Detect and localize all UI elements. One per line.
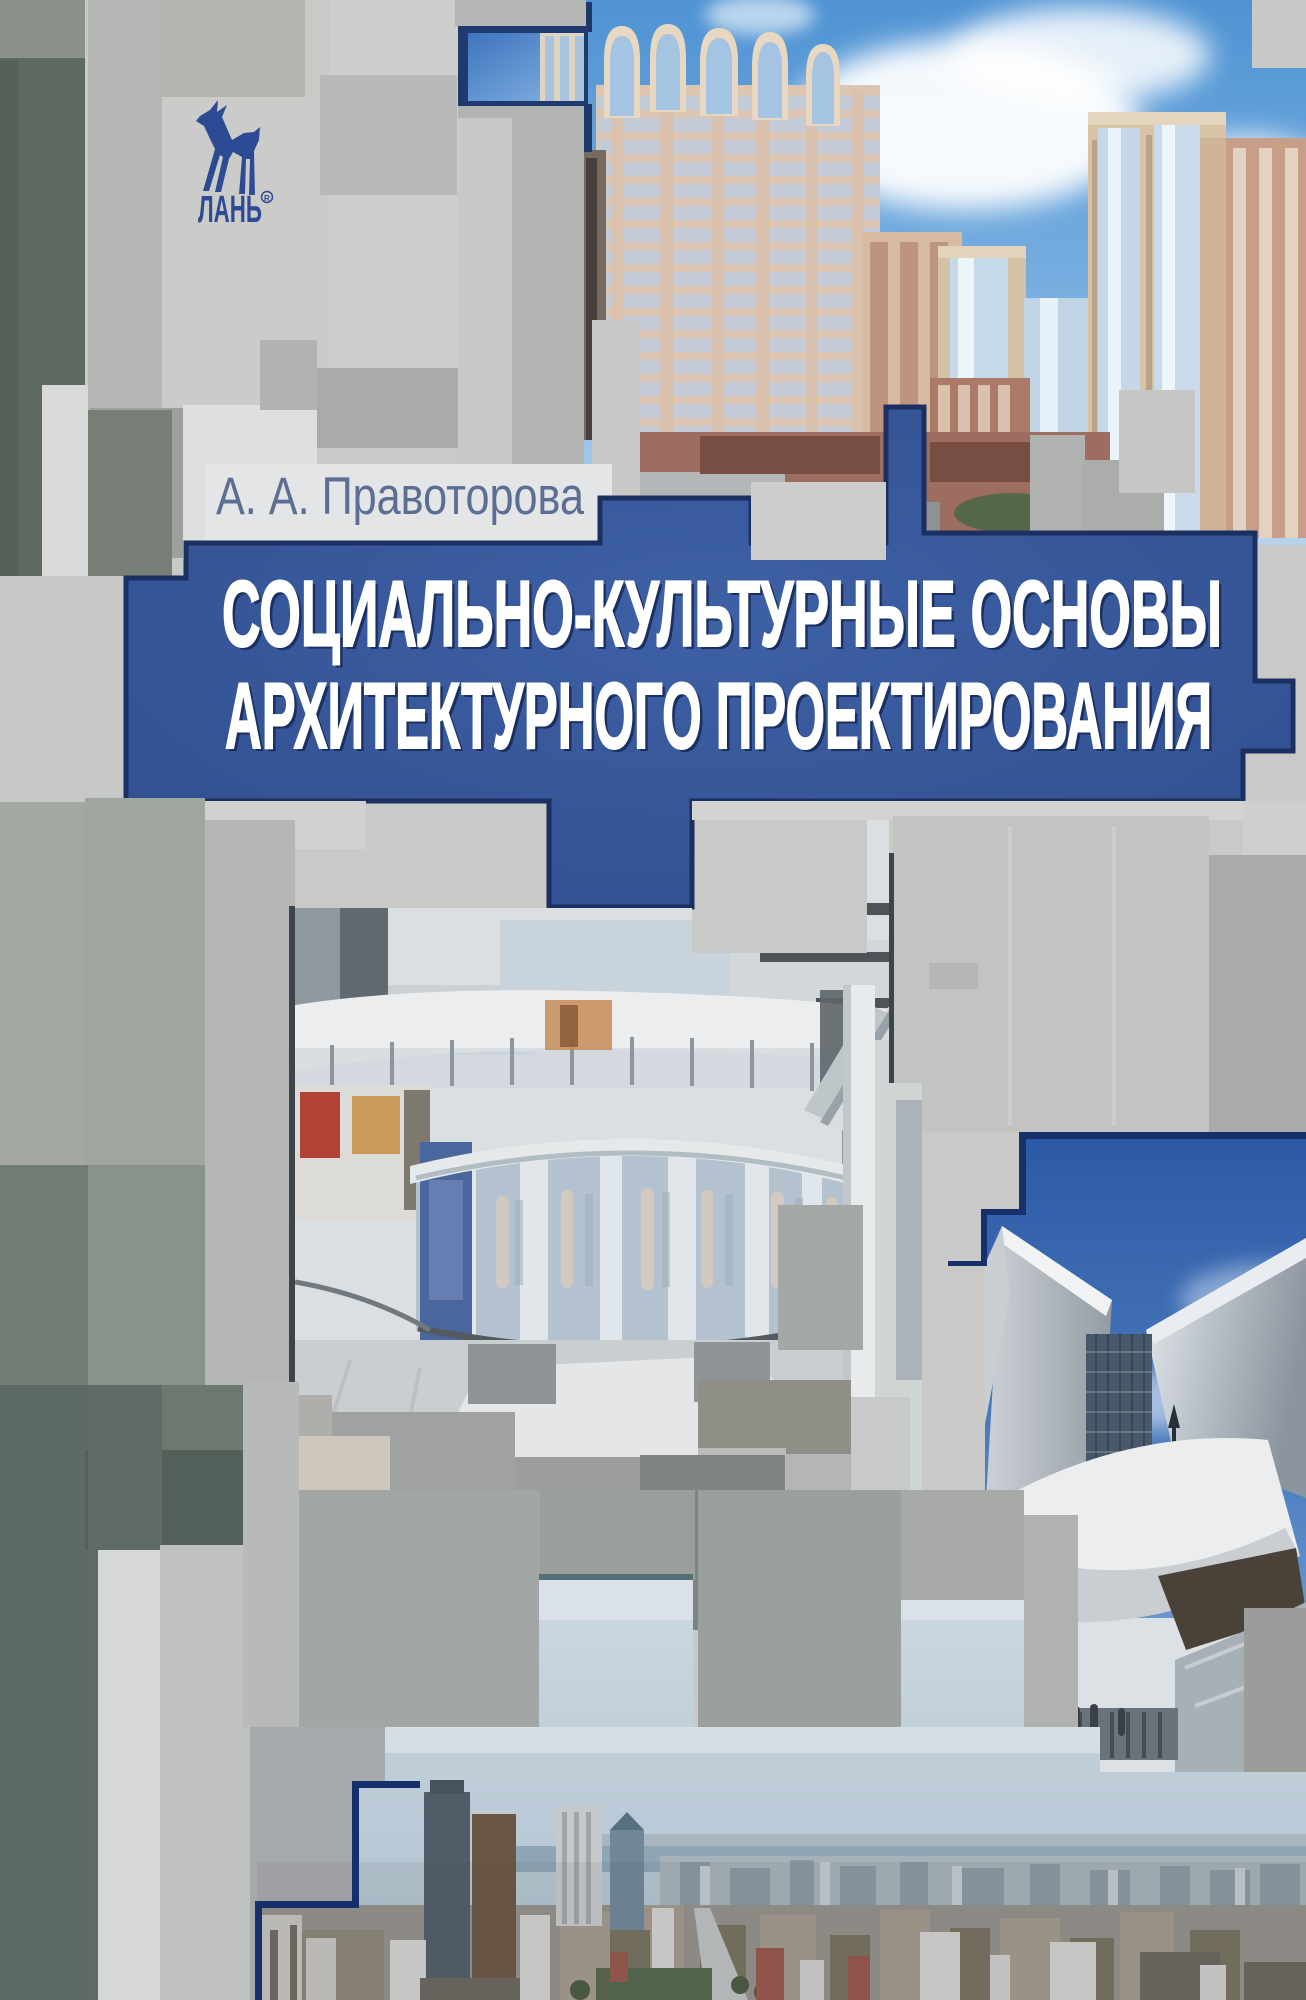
svg-text:ЛАНЬ: ЛАНЬ [198,189,262,231]
svg-text:А. А. Правоторова: А. А. Правоторова [216,467,584,526]
svg-text:R: R [264,194,270,203]
svg-text:АРХИТЕКТУРНОГО ПРОЕКТИРОВАНИЯ: АРХИТЕКТУРНОГО ПРОЕКТИРОВАНИЯ [225,663,1212,768]
svg-text:СОЦИАЛЬНО-КУЛЬТУРНЫЕ ОСНОВЫ: СОЦИАЛЬНО-КУЛЬТУРНЫЕ ОСНОВЫ [222,561,1222,666]
